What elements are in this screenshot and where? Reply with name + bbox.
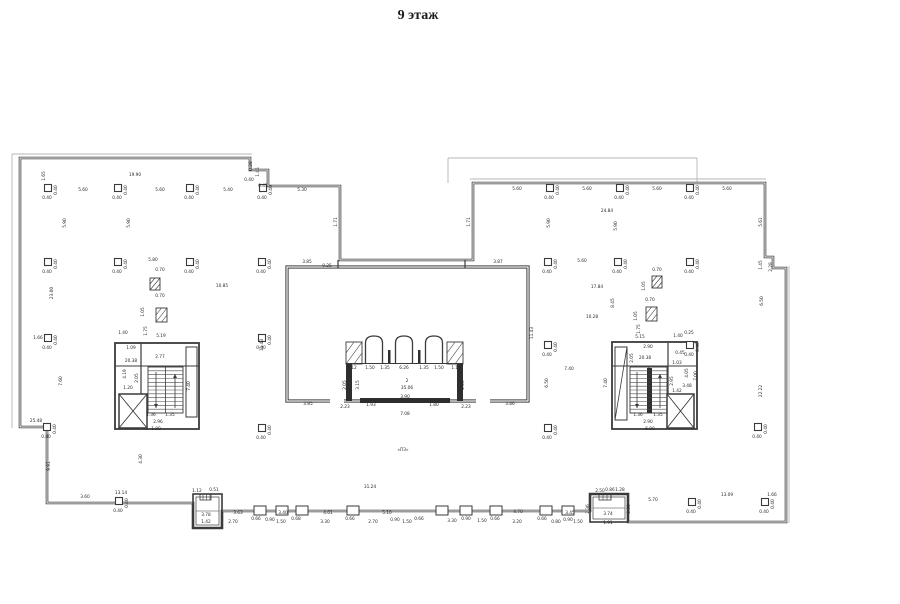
- column-dim-label: 0.40: [542, 435, 552, 441]
- column: [547, 185, 554, 192]
- dimension-label: 5.60: [722, 186, 732, 192]
- column: [755, 424, 762, 431]
- dimension-label: 2.70: [368, 519, 378, 525]
- dimension-label: 2.95: [669, 376, 675, 386]
- hatch-line: [150, 278, 155, 284]
- column-dim-label: 0.40: [123, 259, 129, 269]
- dimension-label: 5.60: [652, 186, 662, 192]
- column: [545, 259, 552, 266]
- dimension-label: 2.05: [342, 380, 348, 390]
- arrow-head: [154, 404, 158, 408]
- hatch-line: [354, 353, 362, 364]
- dimension-label: 3.30: [447, 518, 457, 524]
- dimension-label: 0.40: [244, 177, 254, 183]
- hatch-line: [652, 276, 662, 288]
- dimension-label: 2.77: [155, 354, 165, 360]
- column-dim-label: 0.40: [256, 435, 266, 441]
- hatch-line: [657, 282, 662, 288]
- column-dim-label: 0.40: [256, 269, 266, 275]
- column: [45, 259, 52, 266]
- dimension-label: 1.75: [636, 324, 642, 334]
- pilaster: [296, 506, 308, 515]
- dimension-label: 1.93: [366, 402, 376, 408]
- dimension-label: 1.45: [255, 167, 261, 177]
- column-dim-label: 0.40: [195, 259, 201, 269]
- dimension-label: 5.60: [512, 186, 522, 192]
- column: [115, 259, 122, 266]
- dimension-label: 4.70: [513, 509, 523, 515]
- column-dim-label: 0.40: [553, 259, 559, 269]
- dimension-label: 1.71: [333, 217, 339, 227]
- dimension-label: 1.35: [165, 412, 175, 418]
- column-dim-label: 0.40: [42, 269, 52, 275]
- dimension-label: 6.90: [645, 426, 655, 432]
- dimension-label: 3.45: [565, 510, 575, 516]
- dimension-label: 3.60: [80, 494, 90, 500]
- column: [689, 499, 696, 506]
- dimension-label: 5.60: [582, 186, 592, 192]
- column: [259, 259, 266, 266]
- column-dim-label: 0.40: [112, 269, 122, 275]
- dimension-label: 4.30: [138, 454, 144, 464]
- dimension-label: 9.91: [46, 461, 52, 471]
- column: [545, 425, 552, 432]
- dimension-label: 1.42: [201, 519, 211, 525]
- column: [45, 335, 52, 342]
- column-dim-label: 0.40: [544, 195, 554, 201]
- dimension-label: 1.66: [33, 335, 43, 341]
- lift-car: [426, 336, 443, 363]
- column-dim-label: 0.40: [113, 508, 123, 514]
- dimension-label: 1.50: [573, 519, 583, 525]
- dimension-label: 11.43: [529, 327, 535, 340]
- dimension-label: 0.80: [551, 519, 561, 525]
- dimension-label: 5.60: [78, 187, 88, 193]
- column-dim-label: 0.40: [41, 434, 51, 440]
- dimension-label: «ПЗ»: [397, 447, 409, 453]
- dimension-label: 11.43: [259, 339, 265, 352]
- dimension-label: 5.80: [148, 257, 158, 263]
- dimension-label: 0.25: [322, 263, 332, 269]
- dimension-label: 10.28: [586, 314, 599, 320]
- column-dim-label: 0.40: [612, 269, 622, 275]
- arrow-head: [635, 404, 639, 408]
- dimension-label: 0.66: [537, 516, 547, 522]
- plan-line: [615, 347, 627, 420]
- dimension-label: 1.50: [402, 519, 412, 525]
- dimension-label: 3.85: [303, 401, 313, 407]
- column: [259, 425, 266, 432]
- lift-car: [366, 336, 383, 363]
- hatch-line: [162, 315, 168, 322]
- column-dim-label: 0.40: [555, 185, 561, 195]
- dimension-label: 6.50: [544, 378, 550, 388]
- dimension-label: 3.90: [400, 394, 410, 400]
- dimension-label: 1.66: [767, 492, 777, 498]
- column-dim-label: 0.40: [184, 195, 194, 201]
- dimension-label: 2.05: [629, 353, 635, 363]
- dimension-label: 1.42: [672, 388, 682, 394]
- dimension-label: 1.75: [143, 326, 149, 336]
- dimension-label: 0.86: [605, 487, 615, 493]
- dimension-label: 1.36: [633, 412, 643, 418]
- dimension-label: 7.08: [400, 411, 410, 417]
- dimension-label: 0.66: [251, 516, 261, 522]
- column-dim-label: 0.40: [697, 499, 703, 509]
- hatch-line: [652, 276, 657, 282]
- column-dim-label: 0.40: [123, 185, 129, 195]
- dimension-label: 0.25: [684, 330, 694, 336]
- pilaster: [460, 506, 472, 515]
- column: [187, 185, 194, 192]
- dimension-label: 1.80: [429, 402, 439, 408]
- dimension-label: 2.05: [460, 380, 466, 390]
- column-dim-label: 0.40: [267, 259, 273, 269]
- dimension-label: 31.24: [364, 484, 377, 490]
- dimension-label: 2.96: [153, 419, 163, 425]
- dimension-label: 0.28: [248, 161, 254, 171]
- dimension-label: 7.00: [693, 371, 699, 381]
- hatch-line: [346, 342, 362, 364]
- dimension-label: 7.40: [564, 366, 574, 372]
- column-dim-label: 0.40: [42, 345, 52, 351]
- column-dim-label: 0.40: [184, 269, 194, 275]
- hatch-line: [155, 284, 160, 290]
- solid-wall: [388, 350, 391, 363]
- dimension-label: 6.26: [399, 365, 409, 371]
- column-dim-label: 0.40: [759, 509, 769, 515]
- column-dim-label: 0.40: [770, 499, 776, 509]
- hatch-line: [646, 307, 652, 314]
- dimension-label: 25.48: [30, 418, 43, 424]
- dimension-label: 23.00: [49, 287, 55, 300]
- dimension-label: 5.90: [126, 218, 132, 228]
- column-dim-label: 0.40: [684, 195, 694, 201]
- dimension-label: 2.05: [134, 373, 140, 383]
- column-dim-label: 0.40: [542, 352, 552, 358]
- column-dim-label: 0.40: [614, 195, 624, 201]
- dimension-label: 2.70: [228, 519, 238, 525]
- column-dim-label: 0.40: [623, 259, 629, 269]
- dimension-label: 1.40: [118, 330, 128, 336]
- dimension-label: 1.35: [653, 412, 663, 418]
- dimension-label: 3.30: [320, 519, 330, 525]
- column-dim-label: 0.40: [53, 335, 59, 345]
- dimension-label: 1.50: [434, 365, 444, 371]
- dimension-label: 5.70: [648, 497, 658, 503]
- dimension-label: 3.15: [355, 380, 361, 390]
- dimension-label: 0.66: [414, 516, 424, 522]
- lift-car: [396, 336, 413, 363]
- dimension-label: 7.40: [603, 378, 609, 388]
- dimension-label: 1.80: [151, 426, 161, 432]
- dimension-label: 5.40: [223, 187, 233, 193]
- dimension-label: 5.15: [635, 334, 645, 340]
- dimension-label: 1.50: [276, 519, 286, 525]
- pilaster: [540, 506, 552, 515]
- dimension-label: 1.65: [41, 171, 47, 181]
- column-dim-label: 0.40: [684, 352, 694, 358]
- dimension-label: 0.70: [652, 267, 662, 273]
- column: [116, 498, 123, 505]
- dimension-label: 1.05: [641, 281, 647, 291]
- pilaster: [254, 506, 266, 515]
- dimension-label: 0.36: [626, 504, 632, 514]
- dimension-label: 3.87: [493, 259, 503, 265]
- dimension-label: 2.28: [768, 262, 774, 272]
- column: [115, 185, 122, 192]
- dimension-label: 0.70: [155, 267, 165, 273]
- dimension-label: 0.66: [490, 516, 500, 522]
- dimension-label: 2.23: [461, 404, 471, 410]
- column: [617, 185, 624, 192]
- dimension-label: 0.68: [291, 516, 301, 522]
- hatch-line: [447, 342, 455, 353]
- dimension-label: 5.90: [546, 218, 552, 228]
- dimension-label: 1.09: [126, 345, 136, 351]
- dimension-label: 2: [406, 378, 409, 384]
- column-dim-label: 0.40: [763, 424, 769, 434]
- dimension-label: 5.61: [758, 217, 764, 227]
- dimension-label: 5.19: [156, 333, 166, 339]
- floor-plan-svg: 0.400.400.400.400.400.400.400.400.400.40…: [0, 0, 900, 604]
- dimension-label: 4.05: [684, 368, 690, 378]
- dimension-label: 5.10: [382, 510, 392, 516]
- dimension-label: 1.03: [672, 360, 682, 366]
- column-dim-label: 0.40: [52, 424, 58, 434]
- dimension-label: 3.40: [278, 510, 288, 516]
- column: [762, 499, 769, 506]
- column-dim-label: 0.40: [686, 509, 696, 515]
- dimension-label: 5.90: [613, 221, 619, 231]
- column-dim-label: 0.40: [267, 425, 273, 435]
- column-dim-label: 0.40: [752, 434, 762, 440]
- pilaster: [347, 506, 359, 515]
- dimension-label: 4.19: [122, 369, 128, 379]
- dimension-label: 2.36: [585, 504, 591, 514]
- dimension-label: 3.74: [603, 511, 613, 517]
- dimension-label: 1.50: [365, 365, 375, 371]
- dimension-label: 0.43: [258, 183, 268, 189]
- column-dim-label: 0.40: [553, 425, 559, 435]
- column-dim-label: 0.40: [112, 195, 122, 201]
- dimension-label: 2.23: [340, 404, 350, 410]
- dimension-label: 0.70: [155, 293, 165, 299]
- column: [45, 185, 52, 192]
- dimension-label: 1.50: [477, 518, 487, 524]
- dimension-label: 35.06: [401, 385, 414, 391]
- hatch-line: [156, 308, 162, 315]
- dimension-label: 22.22: [758, 385, 764, 398]
- pilaster: [436, 506, 448, 515]
- column: [44, 424, 51, 431]
- dimension-label: 3.48: [682, 383, 692, 389]
- column-dim-label: 0.40: [195, 185, 201, 195]
- floor-plan-page: 9 этаж 0.400.400.400.400.400.400.400.400…: [0, 0, 900, 604]
- door-gap: [330, 397, 344, 404]
- dimension-label: 2.90: [643, 344, 653, 350]
- column: [615, 259, 622, 266]
- dimension-label: 1.36: [146, 412, 156, 418]
- dimension-label: 2.50: [595, 488, 605, 494]
- dimension-label: 1.05: [140, 307, 146, 317]
- dimension-label: 4.01: [323, 510, 333, 516]
- hatch-line: [455, 353, 463, 364]
- dimension-label: 0.70: [645, 297, 655, 303]
- column-dim-label: 0.40: [267, 335, 273, 345]
- dimension-label: 3.85: [302, 259, 312, 265]
- dimension-label: 8.45: [610, 298, 616, 308]
- column-dim-label: 0.40: [684, 269, 694, 275]
- dimension-label: 24.84: [601, 208, 614, 214]
- column-dim-label: 0.40: [625, 185, 631, 195]
- dimension-label: 7.40: [186, 381, 192, 391]
- column-dim-label: 0.40: [695, 185, 701, 195]
- hatch-line: [646, 307, 657, 321]
- solid-wall: [418, 350, 421, 363]
- column-dim-label: 0.40: [53, 185, 59, 195]
- dimension-label: 5.30: [297, 187, 307, 193]
- dimension-label: 5.60: [155, 187, 165, 193]
- hatch-line: [346, 342, 354, 353]
- dimension-label: 0.66: [345, 516, 355, 522]
- hatch-line: [150, 278, 160, 290]
- dimension-label: 1.35: [419, 365, 429, 371]
- dimension-label: 1.35: [380, 365, 390, 371]
- dimension-label: 0.90: [390, 517, 400, 523]
- column-dim-label: 0.40: [53, 259, 59, 269]
- hatch-line: [156, 308, 167, 322]
- column-dim-label: 0.40: [695, 259, 701, 269]
- column-dim-label: 0.40: [542, 269, 552, 275]
- pilaster: [490, 506, 502, 515]
- dimension-label: 0.45: [675, 350, 685, 356]
- dimension-label: 1.12: [347, 365, 357, 371]
- dimension-label: 7.60: [58, 376, 64, 386]
- column: [187, 259, 194, 266]
- dimension-label: 13.09: [721, 492, 734, 498]
- dimension-label: 19.90: [129, 172, 142, 178]
- column-dim-label: 0.40: [553, 342, 559, 352]
- dimension-label: 0.90: [461, 516, 471, 522]
- column: [687, 342, 694, 349]
- dimension-label: 1.91: [603, 520, 613, 526]
- dimension-label: 20.38: [639, 355, 652, 361]
- column-dim-label: 0.40: [124, 498, 130, 508]
- dimension-label: 1.20: [123, 385, 133, 391]
- dimension-label: 0.90: [563, 517, 573, 523]
- dimension-label: 5.60: [577, 258, 587, 264]
- dimension-label: 1.05: [633, 311, 639, 321]
- dimension-label: 3.20: [512, 519, 522, 525]
- dimension-label: 3.86: [505, 401, 515, 407]
- column: [687, 259, 694, 266]
- dimension-label: 1.28: [615, 487, 625, 493]
- dimension-label: 1.45: [758, 260, 764, 270]
- dimension-label: 5.90: [62, 218, 68, 228]
- dimension-label: 3.78: [201, 512, 211, 518]
- dimension-label: 0.90: [265, 517, 275, 523]
- dimension-label: 1.71: [466, 217, 472, 227]
- dimension-label: 3.63: [233, 510, 243, 516]
- dimension-label: 20.38: [125, 358, 138, 364]
- dimension-label: 10.85: [216, 283, 229, 289]
- dimension-label: 2.90: [643, 419, 653, 425]
- column: [687, 185, 694, 192]
- column-dim-label: 0.40: [268, 185, 274, 195]
- dimension-label: 17.84: [591, 284, 604, 290]
- column-dim-label: 0.40: [695, 342, 701, 352]
- hatch-line: [447, 342, 463, 364]
- dimension-label: 1.12: [192, 488, 202, 494]
- dimension-label: 6.50: [759, 296, 765, 306]
- column-dim-label: 0.40: [257, 195, 267, 201]
- column-dim-label: 0.40: [42, 195, 52, 201]
- dimension-label: 1.40: [673, 333, 683, 339]
- column: [545, 342, 552, 349]
- dimension-label: 13.14: [115, 490, 128, 496]
- dimension-label: 1.12: [451, 365, 461, 371]
- hatch-line: [652, 314, 658, 321]
- dimension-label: 0.51: [209, 487, 219, 493]
- door-gap: [476, 397, 490, 404]
